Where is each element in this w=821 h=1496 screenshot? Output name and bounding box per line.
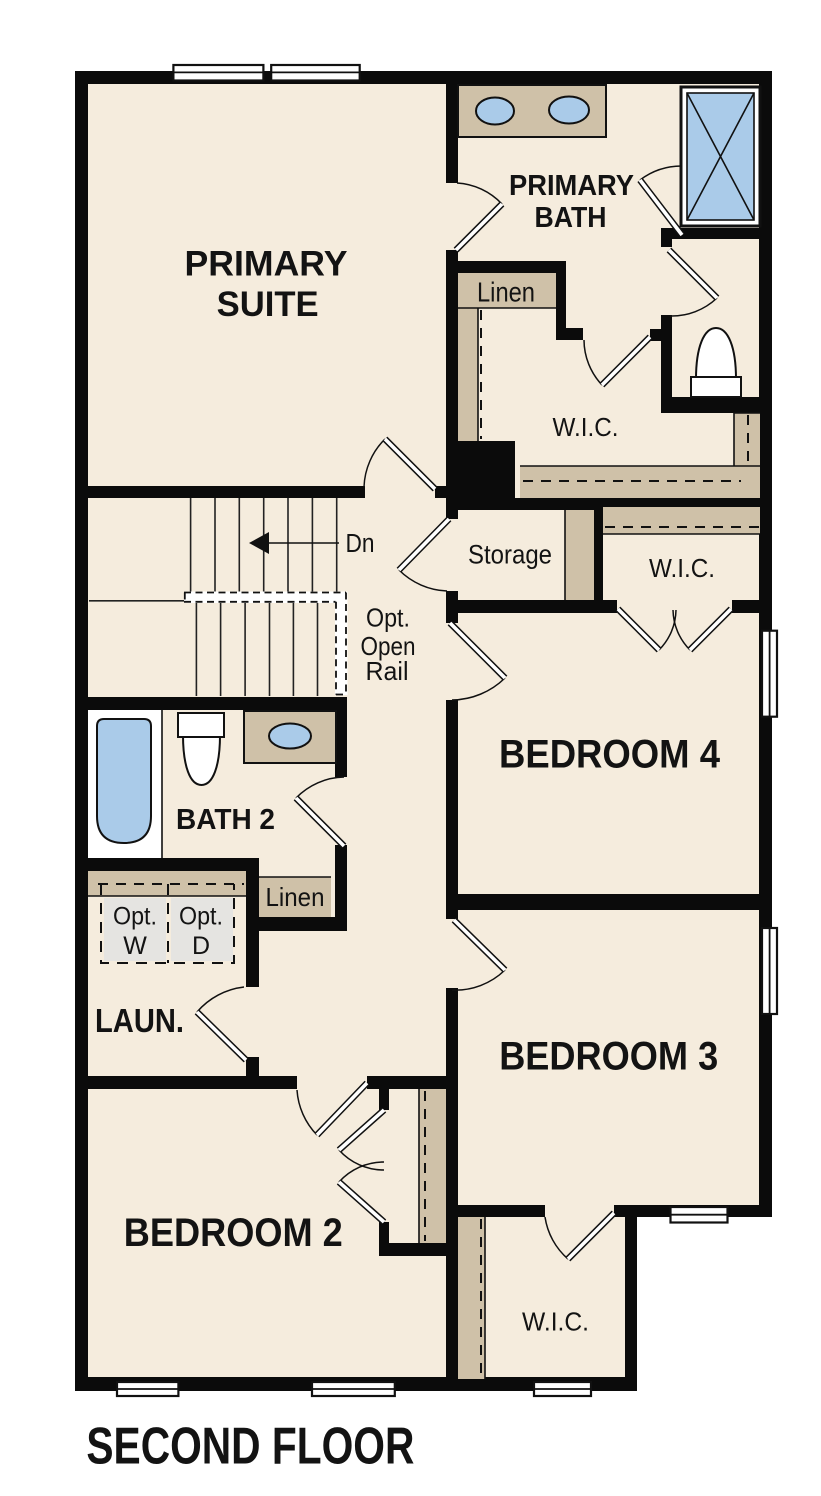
svg-text:BEDROOM 2: BEDROOM 2 [124, 1211, 343, 1255]
svg-text:BEDROOM 4: BEDROOM 4 [499, 733, 721, 777]
svg-text:D: D [192, 932, 210, 960]
svg-text:SECOND FLOOR: SECOND FLOOR [86, 1418, 414, 1476]
svg-text:W.I.C.: W.I.C. [522, 1309, 589, 1337]
svg-text:W: W [123, 932, 147, 960]
svg-text:Opt.: Opt. [113, 903, 157, 931]
svg-text:LAUN.: LAUN. [95, 1002, 184, 1039]
svg-text:BATH 2: BATH 2 [176, 804, 275, 836]
svg-text:BEDROOM 3: BEDROOM 3 [499, 1035, 718, 1079]
svg-text:PRIMARY: PRIMARY [185, 245, 348, 284]
svg-text:Linen: Linen [266, 882, 325, 912]
svg-text:BATH: BATH [535, 202, 607, 234]
svg-text:Open: Open [361, 633, 416, 661]
svg-text:Opt.: Opt. [179, 903, 223, 931]
svg-text:W.I.C.: W.I.C. [649, 555, 715, 583]
svg-text:Rail: Rail [366, 658, 409, 686]
svg-text:Opt.: Opt. [366, 604, 410, 632]
svg-text:PRIMARY: PRIMARY [509, 170, 634, 202]
svg-text:SUITE: SUITE [217, 285, 319, 324]
svg-text:W.I.C.: W.I.C. [553, 414, 619, 442]
svg-text:Storage: Storage [468, 540, 552, 570]
svg-text:Linen: Linen [477, 276, 535, 307]
svg-text:Dn: Dn [346, 530, 375, 558]
